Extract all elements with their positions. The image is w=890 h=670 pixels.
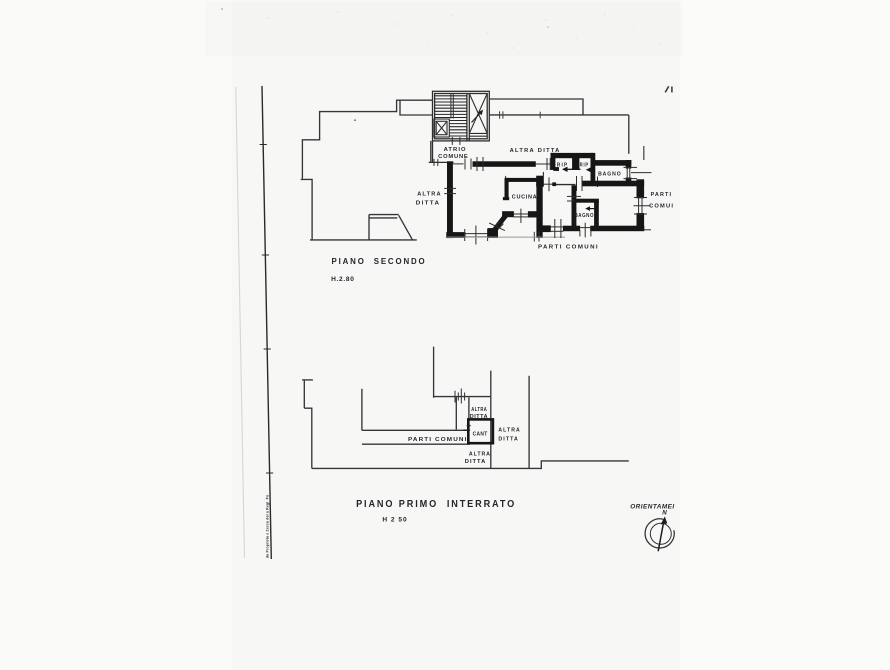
svg-text:COMUI: COMUI bbox=[649, 204, 674, 210]
svg-text:DITTA: DITTA bbox=[498, 437, 519, 443]
svg-text:da Proprieta e Zecca del a Reg: da Proprieta e Zecca del a Regi Po bbox=[266, 495, 270, 558]
svg-text:BAGNO: BAGNO bbox=[598, 172, 622, 178]
svg-text:PIANO SECONDO: PIANO SECONDO bbox=[332, 256, 427, 266]
svg-text:H 2 50: H 2 50 bbox=[382, 516, 407, 523]
svg-text:PARTI COMUNI: PARTI COMUNI bbox=[408, 437, 468, 443]
svg-text:DITTA: DITTA bbox=[465, 459, 487, 465]
svg-text:CUCINA: CUCINA bbox=[512, 195, 538, 201]
svg-text:BAGNO: BAGNO bbox=[575, 213, 595, 219]
svg-text:ORIENTAMEI: ORIENTAMEI bbox=[630, 503, 675, 510]
svg-text:RIP: RIP bbox=[580, 162, 589, 168]
svg-text:PARTI COMUNI: PARTI COMUNI bbox=[538, 245, 599, 251]
svg-text:DITTA: DITTA bbox=[416, 200, 441, 206]
svg-text:RIP: RIP bbox=[557, 162, 569, 168]
svg-text:ALTRA: ALTRA bbox=[469, 451, 491, 457]
svg-text:ALTRA: ALTRA bbox=[471, 407, 487, 413]
svg-text:H.2.80: H.2.80 bbox=[331, 276, 355, 283]
svg-text:PIANO PRIMO INTERRATO: PIANO PRIMO INTERRATO bbox=[356, 499, 516, 510]
svg-text:CANT: CANT bbox=[473, 432, 488, 438]
svg-text:ALTRA: ALTRA bbox=[417, 191, 442, 197]
svg-text:ALTRA: ALTRA bbox=[498, 428, 520, 434]
svg-text:PARTI: PARTI bbox=[651, 192, 673, 198]
svg-text:N: N bbox=[662, 510, 667, 517]
svg-text:COMUNE: COMUNE bbox=[438, 154, 469, 160]
svg-text:ATRIO: ATRIO bbox=[444, 147, 467, 153]
svg-text:DITTA: DITTA bbox=[470, 414, 488, 420]
